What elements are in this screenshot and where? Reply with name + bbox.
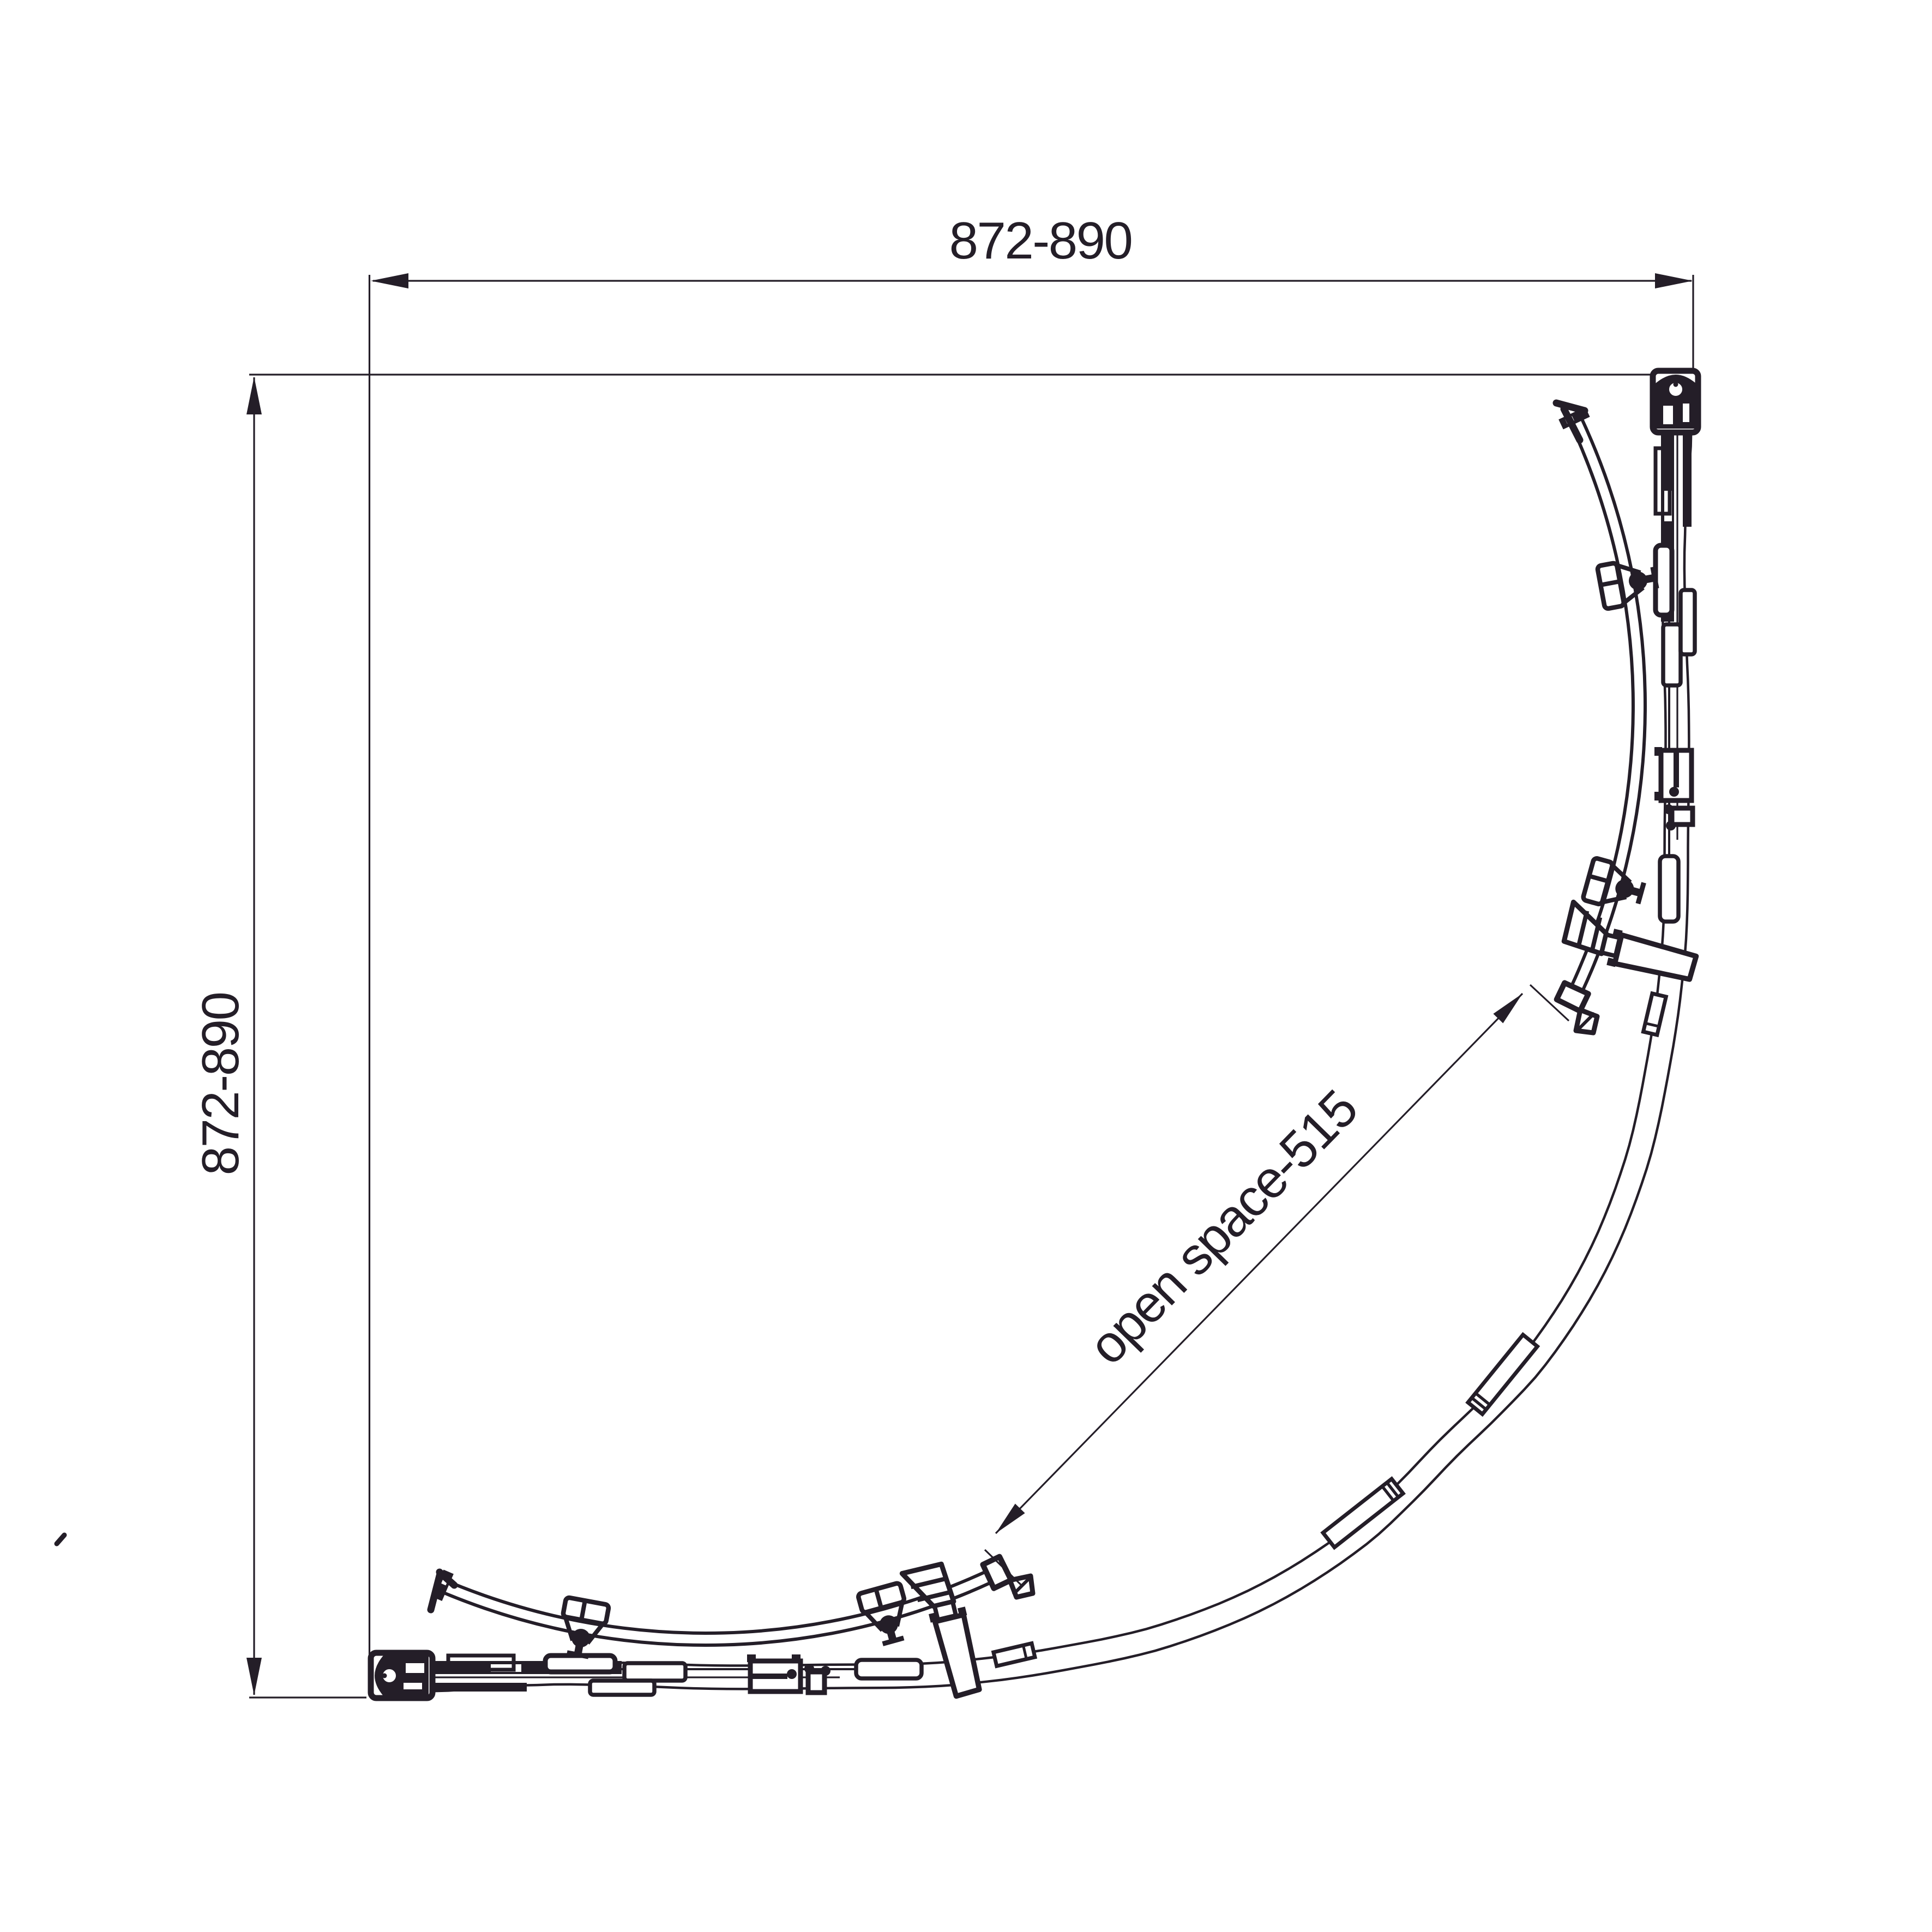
svg-text:872-890: 872-890: [949, 212, 1132, 270]
svg-text:872-890: 872-890: [191, 993, 250, 1176]
